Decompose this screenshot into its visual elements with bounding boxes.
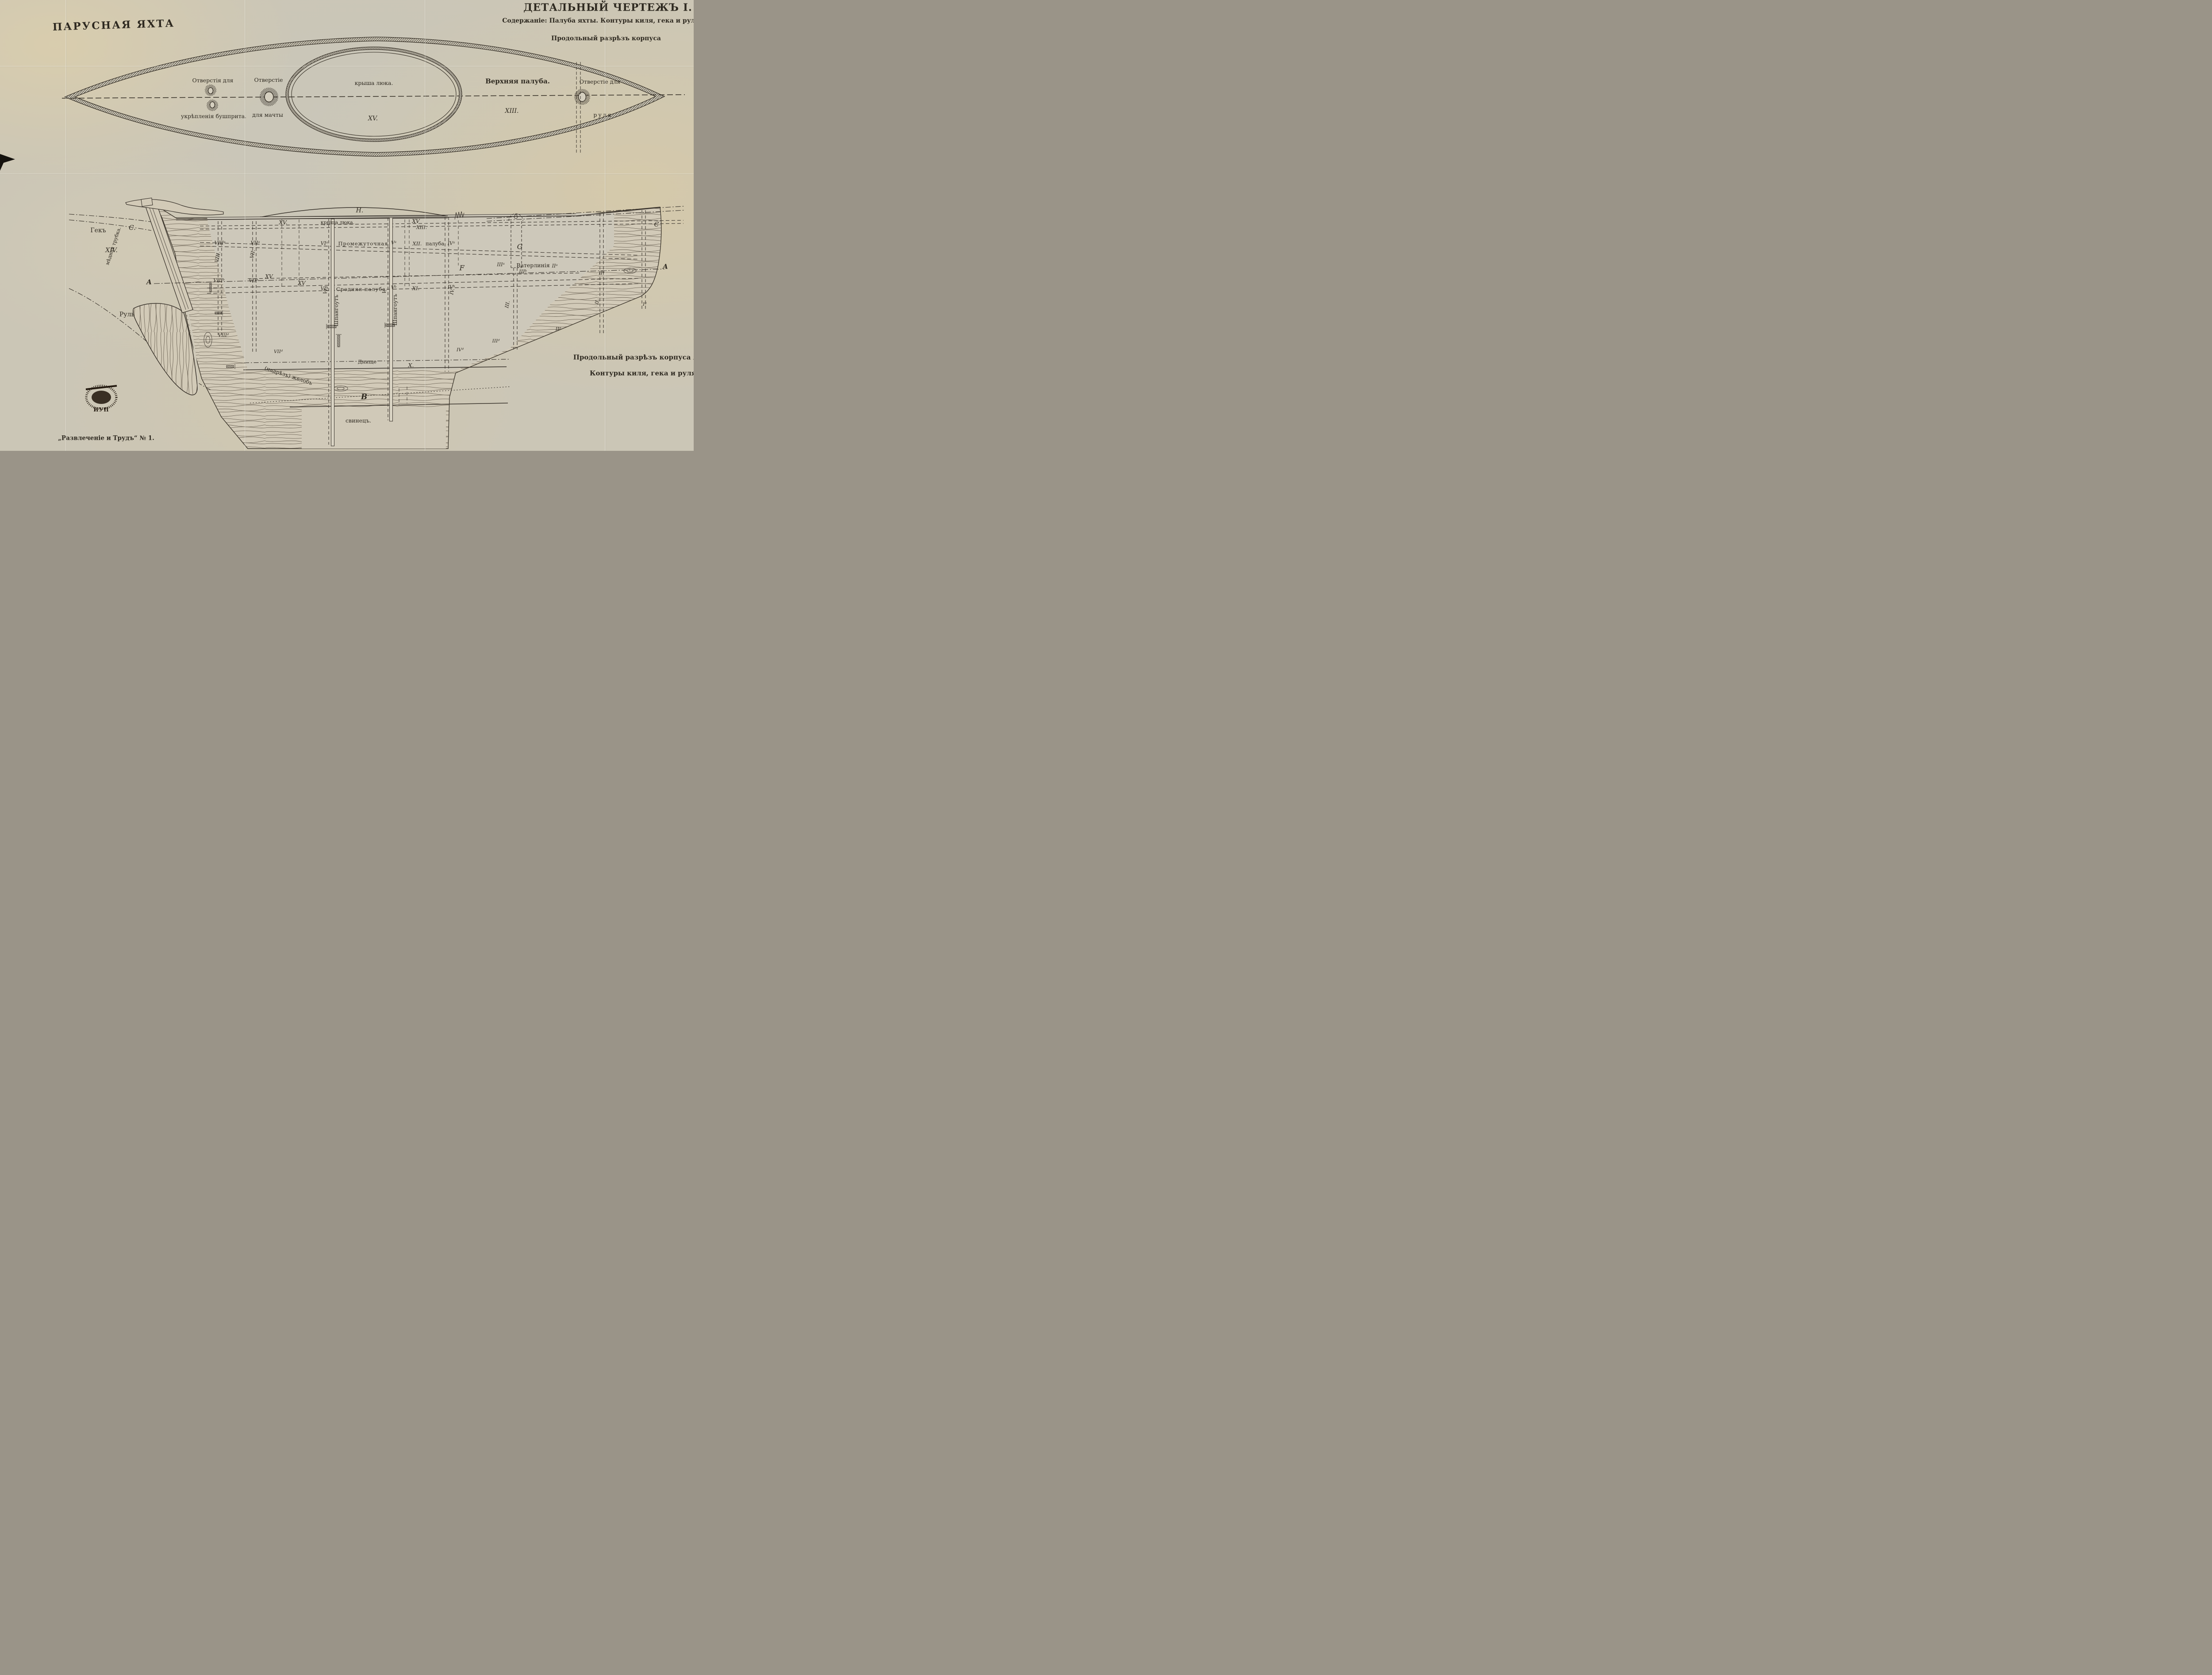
hatch-label-section: крыша люка. xyxy=(321,220,354,225)
x-numeral: X. xyxy=(408,363,414,369)
stamp-text: ИУП xyxy=(93,407,109,413)
paper-crease xyxy=(425,0,426,451)
counter-contour-upper2 xyxy=(69,220,151,231)
letter-a-right: A xyxy=(663,264,668,270)
screw-v xyxy=(338,335,340,347)
paper-crease xyxy=(0,66,694,67)
waterline-label: Ватерлинія xyxy=(516,263,549,269)
mast-hole xyxy=(260,88,278,106)
rudder-label: Руль xyxy=(119,311,134,318)
hatch-band-hatch xyxy=(287,48,461,140)
xii-numeral: XII. xyxy=(413,241,422,246)
xv-mid-1: XV xyxy=(265,274,273,279)
sheet-title: ДЕТАЛЬНЫЙ ЧЕРТЕЖЪ I. xyxy=(523,3,692,13)
frame-label-rot: V. xyxy=(382,289,388,294)
frame-label-b: VIᵇ xyxy=(321,286,328,291)
frame-label-a: IVᵃ xyxy=(448,241,455,246)
xi-numeral: XI. xyxy=(412,286,419,291)
drawing-sheet: ПАРУСНАЯ ЯХТА ДЕТАЛЬНЫЙ ЧЕРТЕЖЪ I. Содер… xyxy=(0,0,694,451)
upper-deck-label: Верхняя палуба. xyxy=(485,78,550,85)
tiller xyxy=(126,200,223,215)
hull-plain-panel xyxy=(207,213,614,370)
bowsprit-hole xyxy=(208,88,213,94)
frame-post-vi xyxy=(331,219,334,446)
sheet-subtitle: Продольный разрѣзъ корпуса xyxy=(551,35,661,42)
frame-label-b: Vᵇ xyxy=(391,285,396,290)
frame-label-b: IIIᵇ xyxy=(519,269,526,274)
frame-label-b: IIᵇ xyxy=(599,271,604,276)
bowsprit-holes xyxy=(205,85,218,111)
letter-g: G xyxy=(517,243,523,250)
magazine-footer: „Развлеченіе и Трудъ“ № 1. xyxy=(58,435,154,442)
hatch-inner-line xyxy=(292,52,456,136)
letter-h: H. xyxy=(356,207,364,214)
frame-label-b: VIIIᵇ xyxy=(213,278,224,283)
bowsprit-holes-label-1: Отверстія для xyxy=(192,78,234,84)
stamp-graphic: ИУП xyxy=(84,380,118,417)
intermediate-deck-word2: палуба xyxy=(426,241,444,246)
paper-crease xyxy=(65,0,67,451)
mast-hole-label-2: для мачты xyxy=(252,112,283,118)
letter-c-bow: C xyxy=(654,222,659,228)
hatch-roof-numeral: XV. xyxy=(368,115,378,122)
hatch-xv-right: XV xyxy=(412,219,419,224)
paper-crease xyxy=(245,0,246,451)
frame-label-d: Iᵈ xyxy=(643,302,646,307)
letter-b: B xyxy=(361,394,367,401)
upper-deck-numeral: XIII. xyxy=(505,108,518,114)
stamp-inner xyxy=(92,391,111,404)
mast-hole-ring xyxy=(265,92,273,102)
rudder-hole-label-2: руля xyxy=(593,112,612,118)
tiller-block xyxy=(141,198,153,206)
hatch-roof-label: крыша люка. xyxy=(355,81,393,86)
frame-label-d: VIIᵈ xyxy=(274,350,283,354)
rudder-hole-ring xyxy=(579,92,586,102)
hull-section xyxy=(69,198,685,449)
middle-deck-label: Средняя палуба xyxy=(336,287,386,292)
stamp-slash xyxy=(86,386,117,389)
frame-label-a: IIᵃ xyxy=(552,264,558,269)
paper-crease xyxy=(0,173,694,175)
margin-ink-mark xyxy=(0,154,15,171)
sheet-contents: Содержаніе: Палуба яхты. Контуры киля, г… xyxy=(502,18,694,24)
letter-c-stern: C. xyxy=(129,225,136,231)
bottom-label: Днище xyxy=(358,359,376,365)
mast-hole-label-1: Отверстіе xyxy=(254,77,283,83)
letter-a-left: A xyxy=(146,279,152,286)
frame-label-a: Vᵃ xyxy=(391,241,396,246)
library-stamp: ИУП xyxy=(84,380,118,417)
frame-word-right: Шпангоутъ xyxy=(392,294,398,326)
frame-label-b: IVᵇ xyxy=(448,285,455,290)
frame-label-d: IVᵈ xyxy=(457,348,464,353)
screw-v xyxy=(210,283,211,292)
frame-label-a: VIᵃ xyxy=(321,241,328,246)
bowsprit-hole xyxy=(210,102,215,108)
screw-h xyxy=(215,312,221,314)
screw-h xyxy=(227,365,234,368)
deck-centerline xyxy=(62,95,685,98)
rudder-hole xyxy=(574,62,590,154)
bowsprit-holes-label-2: укрѣпленія бушприта. xyxy=(181,114,246,119)
lead-label: свинецъ. xyxy=(346,418,371,424)
section-caption-1: Продольный разрѣзъ корпуса яхты. xyxy=(573,354,694,361)
frame-label-rot: II. xyxy=(594,299,600,305)
frame-word-left: Шпангоутъ xyxy=(334,295,339,327)
frame-label-b: VIIᵇ xyxy=(249,278,258,283)
frame-label-d: VIIIᵈ xyxy=(218,333,229,338)
paper-crease xyxy=(605,0,606,451)
frame-label-a: VIIᵃ xyxy=(251,241,260,246)
intermediate-deck-word1: Промежуточная xyxy=(338,241,388,246)
hatch-xv-left: XV. xyxy=(279,220,288,225)
rudder-hole-label-1: Отверстіе для xyxy=(580,79,620,85)
frame-label-d: IIᵈ xyxy=(556,327,561,332)
frame-label-d: IIIᵈ xyxy=(492,339,500,344)
hatch-opening xyxy=(287,48,461,140)
letter-f: F xyxy=(459,265,464,272)
frame-label-a: VIIIᵃ xyxy=(214,241,225,246)
frame-label-a: IIIᵃ xyxy=(497,262,504,267)
frame-label-rot: III. xyxy=(504,300,511,308)
deck-plan xyxy=(62,39,685,154)
counter-label: Гекъ xyxy=(90,227,106,234)
xv-mid-2: XV xyxy=(298,280,305,286)
